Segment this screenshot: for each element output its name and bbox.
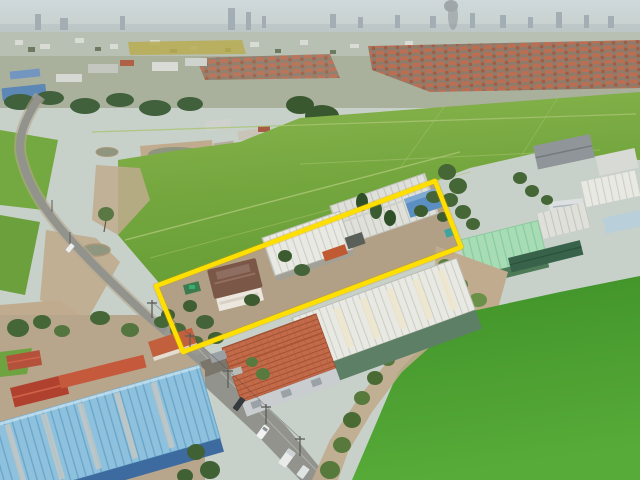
- mustard-field-strip: [128, 40, 246, 55]
- aerial-photo: [0, 0, 640, 480]
- tree-hedge: [438, 164, 553, 230]
- orange-roof-cluster-center: [196, 54, 340, 80]
